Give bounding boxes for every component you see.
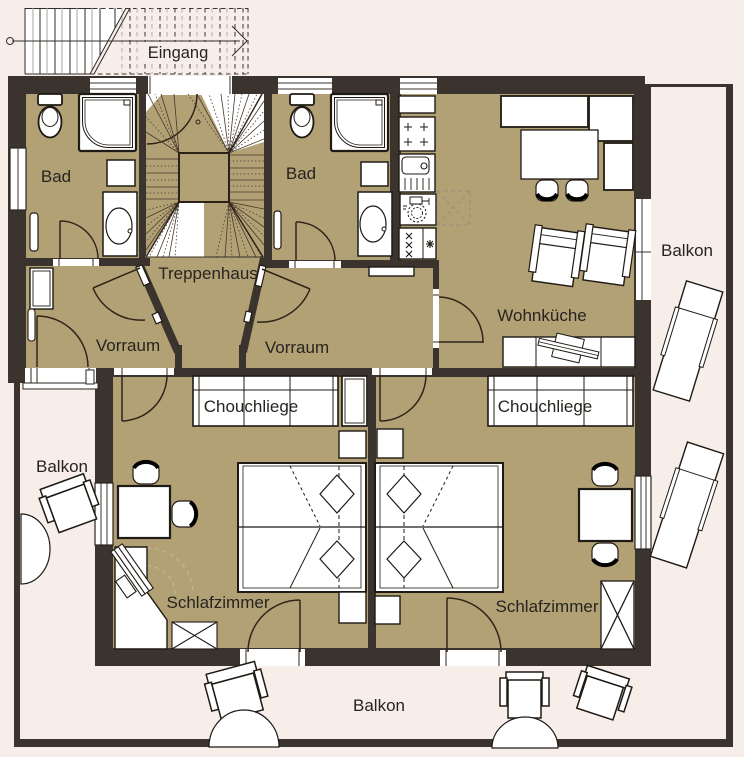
svg-text:Schlafzimmer: Schlafzimmer	[496, 597, 599, 616]
svg-text:Wohnküche: Wohnküche	[497, 306, 586, 325]
svg-text:Bad: Bad	[286, 164, 316, 183]
svg-text:Bad: Bad	[41, 167, 71, 186]
svg-text:Balkon: Balkon	[661, 241, 713, 260]
svg-text:Chouchliege: Chouchliege	[498, 397, 593, 416]
svg-text:Vorraum: Vorraum	[96, 336, 160, 355]
svg-text:Schlafzimmer: Schlafzimmer	[167, 593, 270, 612]
svg-text:Balkon: Balkon	[36, 457, 88, 476]
svg-text:Vorraum: Vorraum	[265, 338, 329, 357]
svg-text:Treppenhaus: Treppenhaus	[158, 264, 258, 283]
svg-text:Chouchliege: Chouchliege	[204, 397, 299, 416]
svg-text:Eingang: Eingang	[148, 44, 209, 62]
svg-text:Balkon: Balkon	[353, 696, 405, 715]
